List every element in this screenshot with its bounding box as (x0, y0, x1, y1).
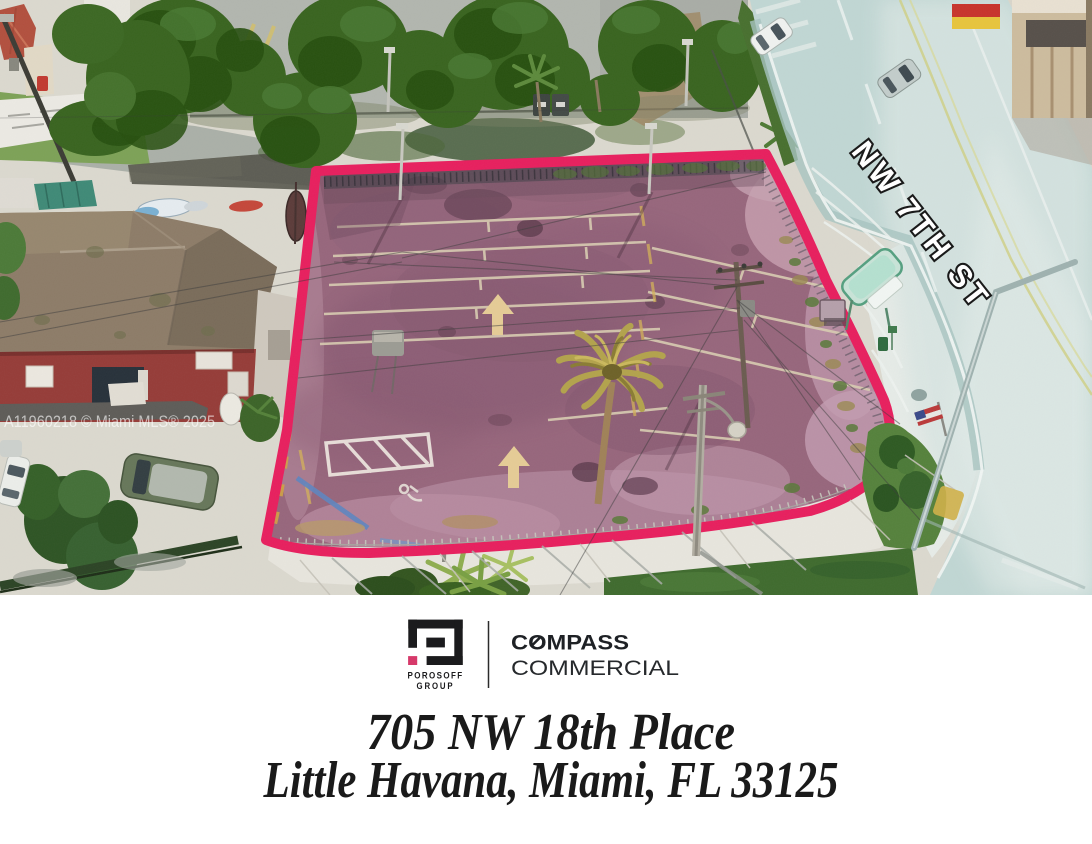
svg-text:Little Havana, Miami, FL 33125: Little Havana, Miami, FL 33125 (263, 752, 839, 809)
svg-text:COMMERCIAL: COMMERCIAL (511, 656, 679, 680)
svg-text:POROSOFF: POROSOFF (408, 671, 464, 681)
svg-text:COMPASS: COMPASS (511, 631, 629, 655)
svg-text:GROUP: GROUP (417, 681, 455, 691)
svg-text:A11960218 © Miami MLS® 2025: A11960218 © Miami MLS® 2025 (4, 413, 215, 431)
